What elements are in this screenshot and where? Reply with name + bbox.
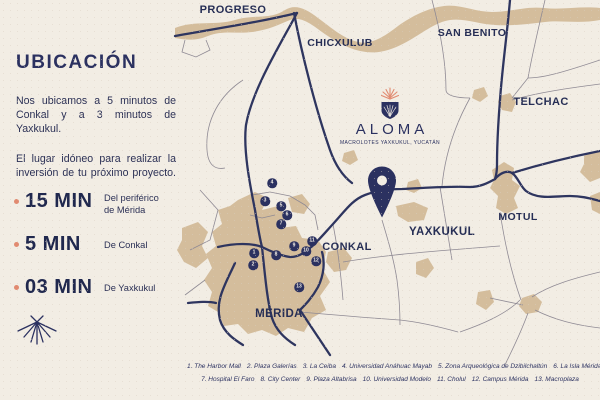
aloma-logo-name: ALOMA <box>335 121 445 138</box>
poi-marker-12[interactable]: 12 <box>311 256 321 266</box>
land-blob <box>590 192 600 214</box>
land-blob <box>476 290 494 310</box>
poi-marker-3[interactable]: 3 <box>260 196 270 206</box>
bullet-dot-icon <box>14 285 19 290</box>
poi-marker-4[interactable]: 4 <box>267 178 277 188</box>
legend-item: 11. Cholul <box>437 374 466 387</box>
location-panel: UBICACIÓN Nos ubicamos a 5 minutos de Co… <box>14 52 176 196</box>
city-label-yaxkukul: YAXKUKUL <box>409 226 475 238</box>
land-blob <box>406 179 422 193</box>
legend-row: 7. Hospital El Faro8. City Center9. Plaz… <box>184 374 596 387</box>
bullet-dot-icon <box>14 242 19 247</box>
city-label-san benito: SAN BENITO <box>438 27 507 39</box>
motul-land <box>490 162 520 214</box>
land-blob <box>519 294 542 314</box>
legend-item: 2. Plaza Galerías <box>247 361 297 374</box>
poi-marker-10[interactable]: 10 <box>301 246 311 256</box>
city-label-chicxulub: CHICXULUB <box>307 37 372 49</box>
legend-item: 7. Hospital El Faro <box>201 374 254 387</box>
land-blob <box>396 202 428 222</box>
land-blob <box>472 87 488 102</box>
land-blob <box>416 258 434 278</box>
page-title: UBICACIÓN <box>16 52 176 74</box>
land-blob <box>342 150 358 165</box>
legend-item: 8. City Center <box>261 374 301 387</box>
city-label-mérida: MÉRIDA <box>255 308 303 320</box>
legend-item: 1. The Harbor Mall <box>187 361 241 374</box>
poi-marker-8[interactable]: 8 <box>271 250 281 260</box>
aloma-logo-tagline: MACROLOTES YAXKUKUL, YUCATÁN <box>335 140 445 146</box>
page: UBICACIÓN Nos ubicamos a 5 minutos de Co… <box>0 0 600 400</box>
travel-time-caption: De Conkal <box>104 240 147 252</box>
travel-times-list: 15 MIN Del periférico de Mérida 5 MIN De… <box>14 190 176 319</box>
travel-time-row: 15 MIN Del periférico de Mérida <box>14 190 176 216</box>
travel-time-row: 5 MIN De Conkal <box>14 233 176 259</box>
legend-item: 9. Plaza Altabrisa <box>306 374 356 387</box>
legend-item: 6. La Isla Mérida <box>553 361 600 374</box>
aloma-logo: ALOMA MACROLOTES YAXKUKUL, YUCATÁN <box>335 86 445 146</box>
legend-item: 10. Universidad Modelo <box>363 374 431 387</box>
legend-item: 5. Zona Arqueológica de Dzibilchaltún <box>438 361 547 374</box>
travel-time-caption: De Yaxkukul <box>104 283 155 295</box>
poi-marker-2[interactable]: 2 <box>248 260 258 270</box>
city-label-telchac: TELCHAC <box>513 96 568 108</box>
city-label-progreso: PROGRESO <box>200 4 267 16</box>
legend-row: 1. The Harbor Mall2. Plaza Galerías3. La… <box>184 361 596 374</box>
bullet-dot-icon <box>14 199 19 204</box>
location-pin[interactable] <box>368 167 396 218</box>
poi-marker-1[interactable]: 1 <box>249 248 259 258</box>
poi-marker-7[interactable]: 7 <box>276 219 286 229</box>
travel-time-caption: Del periférico de Mérida <box>104 193 166 216</box>
legend-item: 3. La Ceiba <box>303 361 336 374</box>
travel-time-value: 5 MIN <box>25 233 81 256</box>
legend-item: 4. Universidad Anáhuac Mayab <box>342 361 432 374</box>
legend-item: 13. Macroplaza <box>534 374 578 387</box>
poi-marker-11[interactable]: 11 <box>307 236 317 246</box>
henequen-plant-icon <box>16 315 58 347</box>
land-blob <box>177 222 208 268</box>
poi-marker-6[interactable]: 6 <box>282 210 292 220</box>
poi-marker-9[interactable]: 9 <box>289 241 299 251</box>
pitch-paragraph: El lugar idóneo para realizar la inversi… <box>16 152 176 180</box>
travel-time-value: 15 MIN <box>25 190 92 213</box>
legend-item: 12. Campus Mérida <box>472 374 529 387</box>
poi-marker-5[interactable]: 5 <box>276 201 286 211</box>
city-label-motul: MOTUL <box>498 211 537 223</box>
intro-paragraph: Nos ubicamos a 5 minutos de Conkal y a 3… <box>16 94 176 136</box>
travel-time-row: 03 MIN De Yaxkukul <box>14 276 176 302</box>
poi-marker-13[interactable]: 13 <box>294 282 304 292</box>
aloma-logo-spacer <box>335 86 445 120</box>
map-legend: 1. The Harbor Mall2. Plaza Galerías3. La… <box>184 361 596 386</box>
travel-time-value: 03 MIN <box>25 276 92 299</box>
city-label-conkal: CONKAL <box>322 241 371 253</box>
